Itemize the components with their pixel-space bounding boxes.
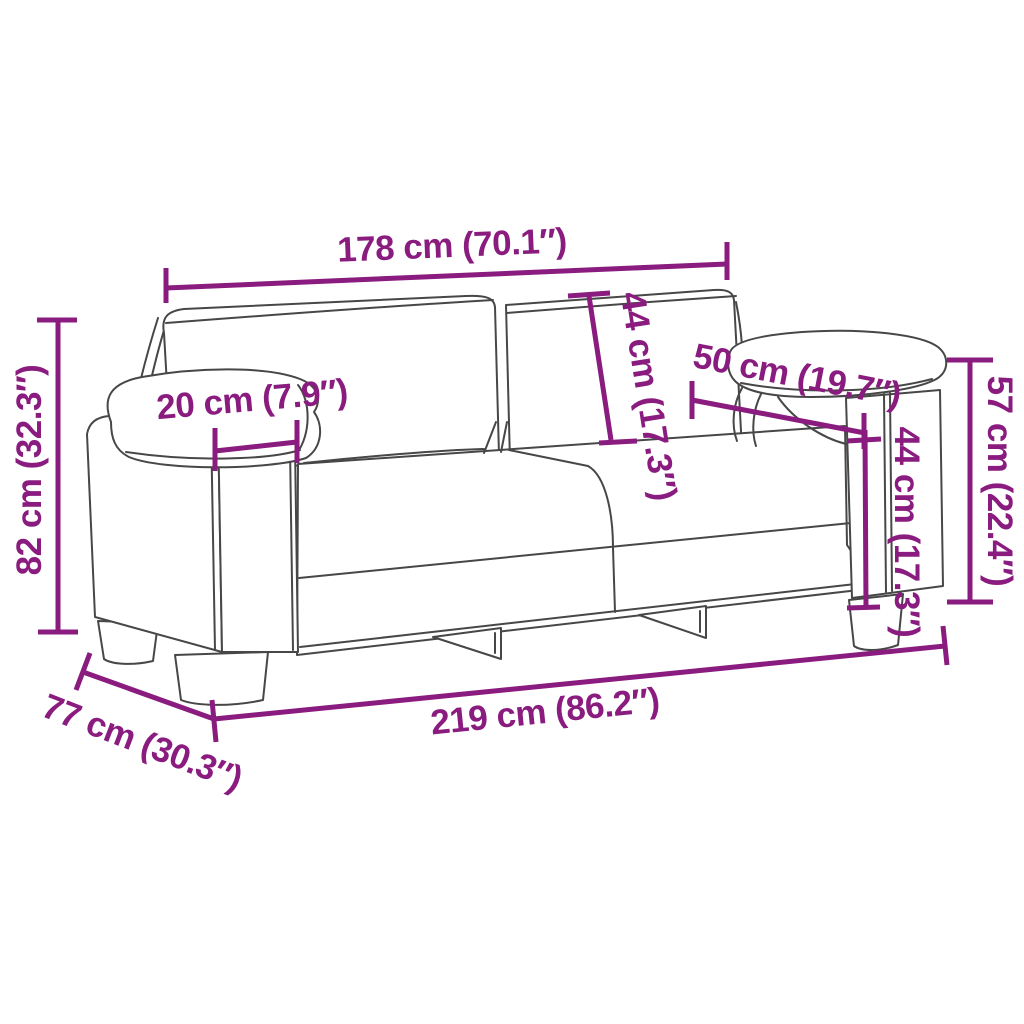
dimension-diagram: 178 cm (70.1″) 44 cm (17.3″) 50 cm (19.7… (0, 0, 1024, 1024)
dim-label-armrest-height: 57 cm (22.4″) (979, 376, 1019, 587)
diagram-canvas (0, 0, 1024, 1024)
dim-label-overall-height: 82 cm (32.3″) (10, 365, 50, 576)
sofa-line-drawing (87, 290, 946, 705)
dim-label-seat-height: 44 cm (17.3″) (886, 427, 926, 638)
